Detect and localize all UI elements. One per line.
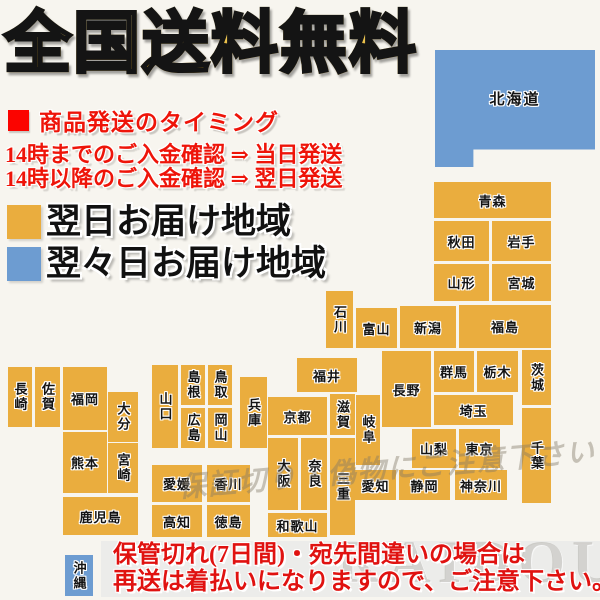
prefecture-block: 山梨 (412, 429, 456, 468)
prefecture-block: 青森 (434, 182, 551, 218)
prefecture-label: 茨城 (527, 363, 546, 393)
prefecture-label: 静岡 (410, 476, 438, 495)
prefecture-block: 秋田 (434, 221, 489, 261)
prefecture-block: 神奈川 (455, 470, 507, 500)
prefecture-block: 埼玉 (434, 395, 513, 425)
prefecture-block: 熊本 (63, 432, 107, 493)
prefecture-label: 石川 (330, 305, 349, 335)
prefecture-label: 奈良 (305, 459, 324, 489)
prefecture-block: 滋賀 (330, 394, 355, 435)
prefecture-block: 岩手 (492, 221, 551, 261)
prefecture-label: 埼玉 (459, 401, 487, 420)
prefecture-label: 福島 (491, 317, 519, 336)
prefecture-label: 秋田 (447, 232, 475, 251)
prefecture-block: 福井 (297, 358, 357, 392)
prefecture-label: 栃木 (483, 362, 511, 381)
prefecture-block: 愛知 (355, 470, 396, 500)
prefecture-block: 山形 (434, 264, 489, 301)
prefecture-label: 愛知 (361, 476, 389, 495)
prefecture-label: 富山 (362, 319, 390, 338)
prefecture-label: 山口 (156, 392, 175, 422)
prefecture-label: 岡山 (211, 413, 230, 443)
prefecture-block: 香川 (207, 465, 250, 502)
prefecture-block: 新潟 (400, 306, 456, 348)
prefecture-label: 東京 (465, 439, 493, 458)
prefecture-label: 福岡 (71, 389, 99, 408)
prefecture-block: 岡山 (208, 408, 232, 448)
prefecture-label: 鳥取 (211, 370, 230, 400)
prefecture-label: 滋賀 (333, 400, 352, 430)
prefecture-block: 長野 (382, 351, 431, 427)
prefecture-label: 岐阜 (359, 415, 378, 445)
prefecture-label: 愛媛 (163, 474, 191, 493)
prefecture-label: 福井 (313, 366, 341, 385)
storage-notice: 保管切れ(7日間)・宛先間違いの場合は 再送は着払いになりますので、ご注意下さい… (113, 542, 600, 596)
prefecture-block: 和歌山 (268, 513, 327, 537)
prefecture-block: 茨城 (522, 350, 551, 405)
prefecture-block: 鹿児島 (63, 497, 138, 535)
prefecture-block: 福岡 (63, 367, 107, 430)
prefecture-block: 兵庫 (240, 377, 267, 448)
prefecture-block: 島根 (181, 365, 205, 405)
prefecture-label: 兵庫 (244, 398, 263, 428)
prefecture-label: 佐賀 (38, 382, 57, 412)
prefecture-label: 京都 (283, 407, 311, 426)
prefecture-block: 岐阜 (356, 395, 380, 465)
prefecture-label: 群馬 (440, 362, 468, 381)
prefecture-block: 東京 (459, 429, 500, 468)
prefecture-block: 愛媛 (152, 465, 202, 502)
prefecture-block: 群馬 (434, 351, 474, 392)
prefecture-block: 沖縄 (65, 555, 93, 596)
prefecture-block: 大阪 (268, 438, 298, 510)
prefecture-block: 栃木 (477, 351, 518, 392)
prefecture-block: 長崎 (8, 367, 32, 427)
prefecture-label: 鹿児島 (79, 507, 121, 526)
prefecture-label: 岩手 (507, 232, 535, 251)
prefecture-label: 宮崎 (114, 453, 133, 483)
prefecture-label: 北海道 (489, 88, 540, 109)
prefecture-label: 三重 (333, 472, 352, 502)
prefecture-block: 徳島 (207, 505, 250, 537)
prefecture-label: 長野 (392, 380, 420, 399)
prefecture-label: 島根 (184, 370, 203, 400)
japan-map: 北海道青森秋田岩手山形宮城石川富山新潟福島群馬栃木茨城福井長野岐阜埼玉山梨東京千… (0, 0, 600, 600)
prefecture-label: 大阪 (274, 459, 293, 489)
prefecture-label: 熊本 (71, 453, 99, 472)
prefecture-label: 香川 (214, 474, 242, 493)
prefecture-label: 新潟 (414, 318, 442, 337)
prefecture-block: 三重 (330, 438, 355, 535)
prefecture-label: 高知 (163, 512, 191, 531)
prefecture-label: 千葉 (527, 441, 546, 471)
prefecture-block: 福島 (459, 305, 551, 348)
prefecture-label: 広島 (184, 413, 203, 443)
prefecture-block: 佐賀 (35, 367, 60, 427)
prefecture-block: 石川 (326, 291, 353, 348)
prefecture-block: 京都 (268, 397, 327, 435)
prefecture-block: 広島 (181, 408, 205, 448)
prefecture-block: 奈良 (301, 438, 327, 510)
prefecture-block: 鳥取 (208, 365, 232, 405)
prefecture-label: 山形 (447, 273, 475, 292)
prefecture-label: 神奈川 (460, 476, 502, 495)
prefecture-block: 宮崎 (108, 443, 138, 493)
prefecture-label: 長崎 (11, 382, 30, 412)
storage-notice-line1: 保管切れ(7日間)・宛先間違いの場合は (113, 542, 600, 569)
prefecture-block: 富山 (356, 308, 397, 348)
prefecture-block: 千葉 (522, 408, 551, 503)
prefecture-block: 北海道 (435, 50, 595, 167)
prefecture-label: 徳島 (214, 512, 242, 531)
prefecture-label: 宮城 (507, 273, 535, 292)
prefecture-block: 山口 (152, 365, 178, 448)
prefecture-block: 静岡 (399, 470, 450, 500)
prefecture-label: 和歌山 (276, 516, 318, 535)
storage-notice-line2: 再送は着払いになりますので、ご注意下さい。 (113, 569, 600, 596)
prefecture-block: 高知 (152, 505, 202, 537)
prefecture-label: 大分 (114, 402, 133, 432)
prefecture-block: 宮城 (492, 264, 551, 301)
prefecture-block: 大分 (108, 392, 138, 442)
prefecture-label: 山梨 (420, 439, 448, 458)
shipping-banner: 全国送料無料 商品発送のタイミング 14時までのご入金確認 ⇒ 当日発送 14時… (0, 0, 600, 600)
prefecture-label: 青森 (478, 191, 506, 210)
prefecture-label: 沖縄 (70, 561, 89, 591)
